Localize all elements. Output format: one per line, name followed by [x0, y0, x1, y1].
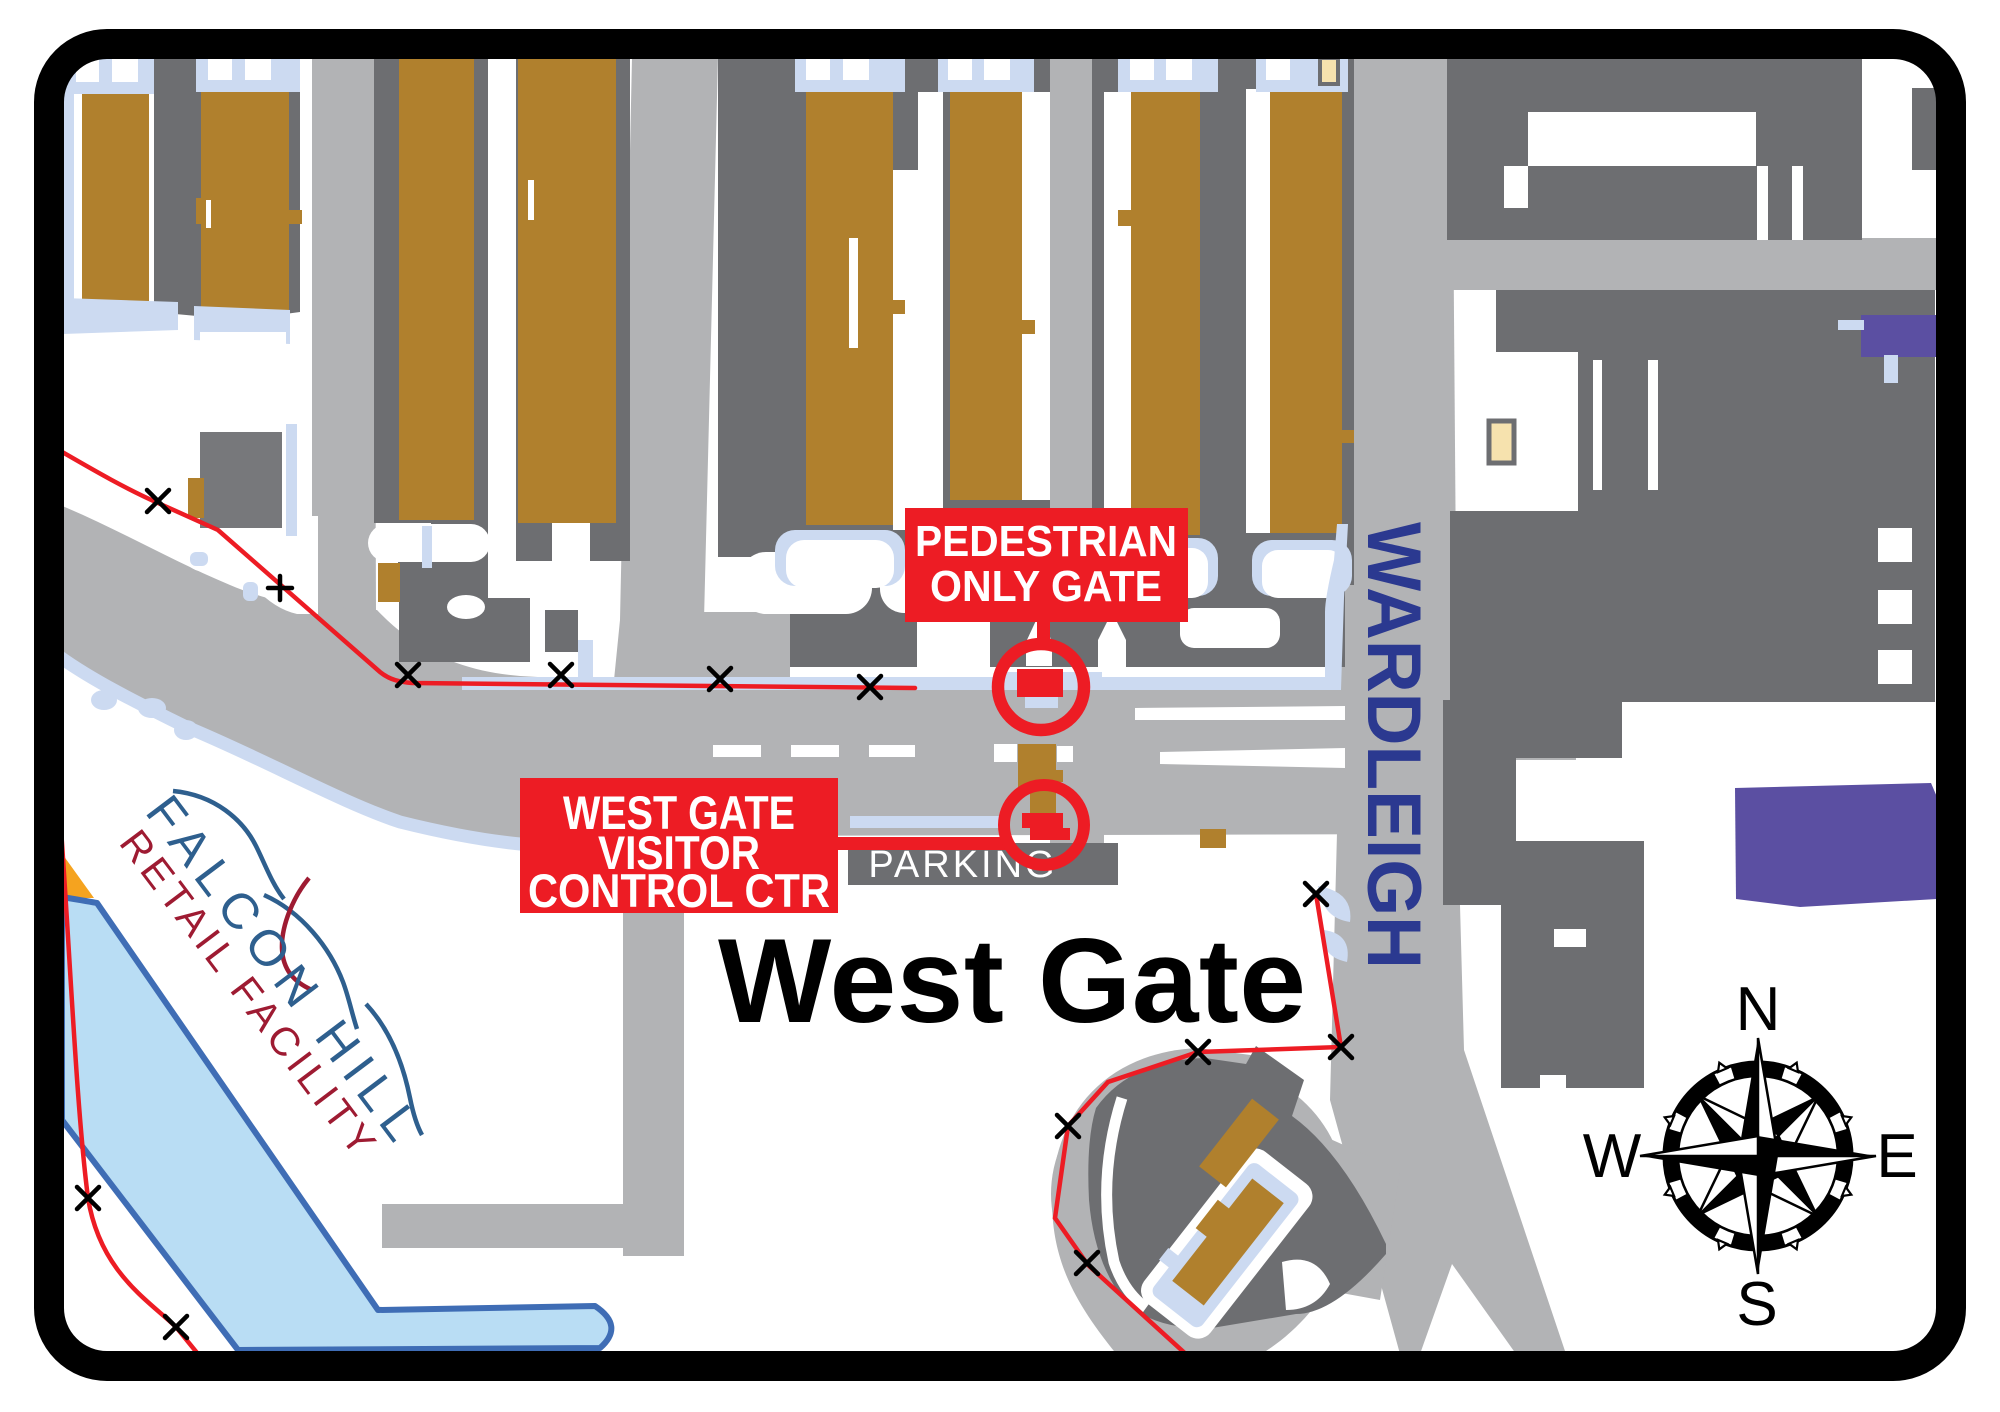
svg-text:CONTROL CTR: CONTROL CTR	[528, 864, 830, 917]
svg-text:N: N	[1736, 975, 1781, 1044]
svg-text:West Gate: West Gate	[718, 914, 1306, 1048]
svg-text:ONLY GATE: ONLY GATE	[930, 562, 1162, 611]
svg-text:W: W	[1583, 1122, 1642, 1191]
svg-text:E: E	[1876, 1122, 1917, 1191]
svg-text:S: S	[1736, 1270, 1777, 1339]
svg-text:PEDESTRIAN: PEDESTRIAN	[915, 517, 1177, 566]
svg-text:WARDLEIGH: WARDLEIGH	[1351, 522, 1436, 969]
